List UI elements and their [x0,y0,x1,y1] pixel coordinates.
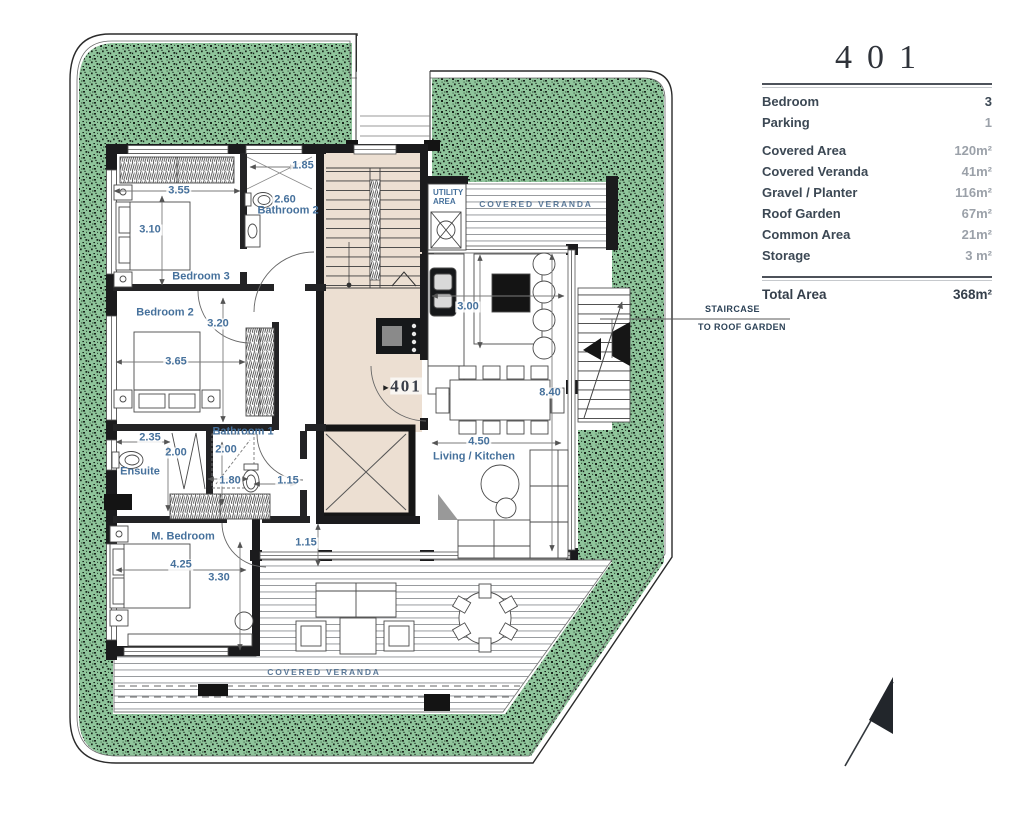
north-arrow-icon [845,677,893,766]
legend-row-bedroom: Bedroom 3 [762,94,992,115]
elevator-shaft [320,428,458,520]
legend-panel: 401 Bedroom 3 Parking 1 Covered Area 120… [762,40,992,311]
floor-plan-page: 1.85 3.55 2.60 Bathroom 2 3.10 Bedroom 3… [0,0,1024,839]
legend-row-parking: Parking 1 [762,115,992,136]
legend-divider-bottom [762,276,992,281]
legend-row-gravel-planter: Gravel / Planter 116m² [762,185,992,206]
legend-divider-top [762,83,992,88]
bathroom1-fixtures [172,433,259,492]
deck-post [424,694,450,711]
bathroom2-fixtures [245,157,312,247]
annotation-staircase-line2: TO ROOF GARDEN [698,322,786,332]
living-sofas [458,450,568,558]
common-stair-core [322,150,422,432]
legend-row-covered-area: Covered Area 120m² [762,143,992,164]
legend-unit-number: 401 [762,40,992,76]
entry-walkway [346,34,440,151]
bedroom2-furniture [114,328,274,416]
ensuite-fixtures [112,452,143,469]
legend-row-storage: Storage 3 m² [762,248,992,269]
legend-row-common-area: Common Area 21m² [762,227,992,248]
legend-row-total: Total Area 368m² [762,287,992,311]
exterior-staircase [578,288,630,422]
legend-row-covered-veranda: Covered Veranda 41m² [762,164,992,185]
deck-post [198,684,228,696]
annotation-staircase-line1: STAIRCASE [705,304,760,314]
utility-room [428,184,466,250]
legend-row-roof-garden: Roof Garden 67m² [762,206,992,227]
bedroom3-furniture [114,157,234,287]
legend-rows: Bedroom 3 Parking 1 Covered Area 120m² C… [762,94,992,269]
